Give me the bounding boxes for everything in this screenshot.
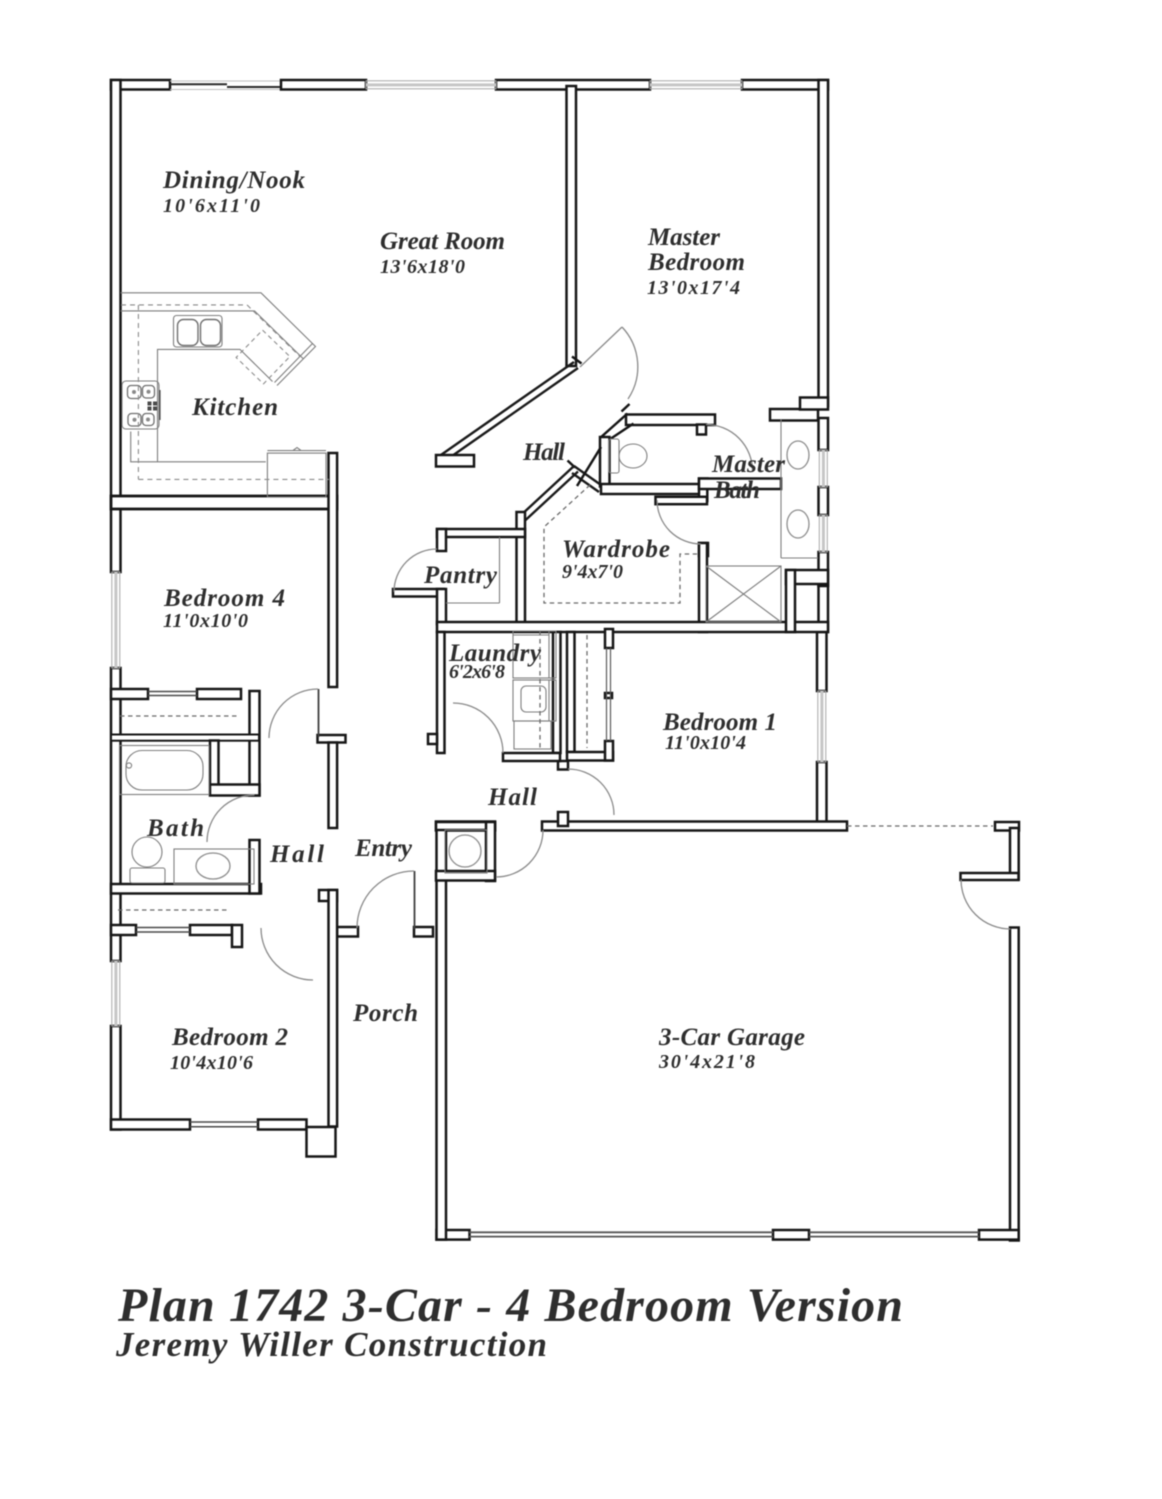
svg-text:Jeremy Willer Construction: Jeremy Willer Construction — [115, 1325, 547, 1364]
svg-text:Bedroom 2: Bedroom 2 — [171, 1024, 288, 1051]
svg-text:Master: Master — [647, 224, 720, 251]
svg-text:10'6x11'0: 10'6x11'0 — [163, 195, 260, 217]
svg-text:Master: Master — [711, 451, 785, 478]
svg-text:30'4x21'8: 30'4x21'8 — [658, 1051, 755, 1073]
svg-text:11'0x10'4: 11'0x10'4 — [665, 732, 746, 754]
svg-text:13'6x18'0: 13'6x18'0 — [380, 256, 465, 278]
svg-text:Bedroom 4: Bedroom 4 — [163, 585, 285, 612]
svg-text:3-Car Garage: 3-Car Garage — [658, 1024, 805, 1051]
svg-text:11'0x10'0: 11'0x10'0 — [163, 610, 248, 632]
svg-text:Porch: Porch — [352, 1000, 418, 1027]
svg-text:6'2x6'8: 6'2x6'8 — [449, 661, 505, 683]
svg-text:10'4x10'6: 10'4x10'6 — [170, 1052, 253, 1074]
svg-text:Bath: Bath — [146, 815, 204, 842]
svg-text:Hall: Hall — [522, 439, 565, 466]
svg-text:Pantry: Pantry — [423, 562, 498, 589]
svg-text:Bedroom: Bedroom — [647, 249, 745, 276]
svg-text:Wardrobe: Wardrobe — [562, 536, 670, 563]
svg-text:Entry: Entry — [354, 835, 413, 862]
svg-text:13'0x17'4: 13'0x17'4 — [647, 277, 740, 299]
svg-text:Dining/Nook: Dining/Nook — [162, 167, 306, 194]
svg-text:Hall: Hall — [487, 784, 537, 811]
svg-text:9'4x7'0: 9'4x7'0 — [562, 561, 623, 583]
svg-text:Great Room: Great Room — [380, 228, 505, 255]
svg-text:Kitchen: Kitchen — [191, 394, 278, 421]
svg-text:Bath: Bath — [713, 477, 760, 504]
